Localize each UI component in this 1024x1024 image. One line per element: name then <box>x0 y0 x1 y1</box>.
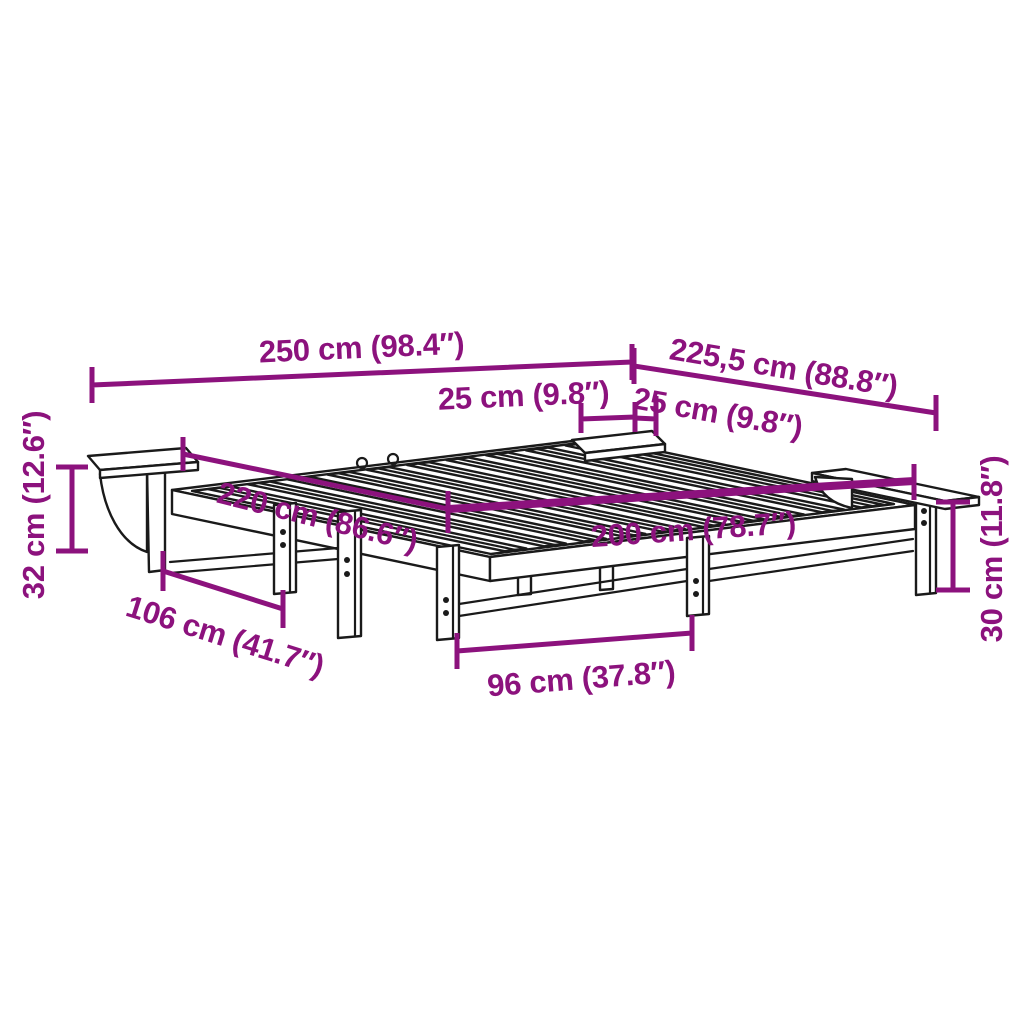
dimension-25cm-a: 25 cm (9.8″) <box>437 374 635 433</box>
dimension-label-32cm: 32 cm (12.6″) <box>16 411 51 599</box>
dimension-label-30cm: 30 cm (11.8″) <box>974 456 1009 643</box>
dimension-96cm: 96 cm (37.8″) <box>457 615 692 703</box>
product-dimension-diagram: 250 cm (98.4″) 225,5 cm (88.8″) 25 cm (9… <box>0 0 1024 1024</box>
dimension-label-106cm: 106 cm (41.7″) <box>122 588 328 683</box>
dimension-line <box>56 467 88 551</box>
dimension-30cm: 30 cm (11.8″) <box>936 456 1009 643</box>
dimension-line <box>936 502 970 590</box>
dimension-32cm: 32 cm (12.6″) <box>16 411 88 599</box>
diagram-canvas: 250 cm (98.4″) 225,5 cm (88.8″) 25 cm (9… <box>0 0 1024 1024</box>
dimension-label-96cm: 96 cm (37.8″) <box>486 654 677 704</box>
leg-brace <box>170 548 338 573</box>
dimension-label-25cm-a: 25 cm (9.8″) <box>437 374 610 416</box>
dimension-label-250cm: 250 cm (98.4″) <box>258 326 465 370</box>
